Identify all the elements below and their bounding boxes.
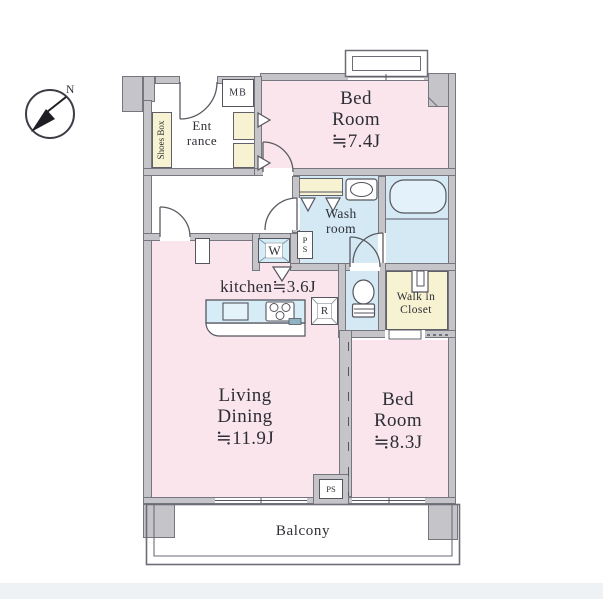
- floor-plan: N Bed Room ≒7.4J Living Dining ≒11.9J Be…: [0, 0, 603, 599]
- sink-icon: [346, 179, 377, 200]
- toilet-icon: [353, 280, 375, 317]
- balcony-label: Balcony: [276, 523, 330, 540]
- living-dining-label: Living Dining ≒11.9J: [216, 385, 274, 449]
- pipe-shaft-lower-label: PS: [326, 484, 335, 494]
- bathtub-icon: [386, 180, 448, 219]
- refrigerator-label: R: [321, 305, 328, 317]
- washroom-label: Wash room: [325, 206, 356, 236]
- entrance-label: Ent rance: [187, 119, 217, 148]
- kitchen-counter: [206, 300, 305, 336]
- shoes-box-label: Shoes Box: [156, 121, 166, 160]
- meter-box-label: MB: [229, 88, 247, 99]
- corner-chamfer: [428, 97, 438, 107]
- pipe-shaft-upper-label: P S: [303, 236, 308, 254]
- washing-machine-label: W: [268, 243, 280, 259]
- floorplan-overlay: [0, 0, 603, 599]
- closet-threshold: [389, 330, 421, 339]
- bedroom-top-label: Bed Room ≒7.4J: [331, 88, 380, 152]
- compass-icon: [26, 90, 74, 138]
- compass-north-label: N: [66, 84, 74, 96]
- bedroom-right-label: Bed Room ≒8.3J: [373, 389, 422, 453]
- walk-in-closet-label: Walk in Closet: [397, 291, 436, 317]
- bay-window: [346, 51, 428, 77]
- kitchen-label: kitchen≒3.6J: [220, 277, 316, 297]
- kitchen-sink-icon: [223, 303, 248, 320]
- closet-notch: [412, 271, 428, 292]
